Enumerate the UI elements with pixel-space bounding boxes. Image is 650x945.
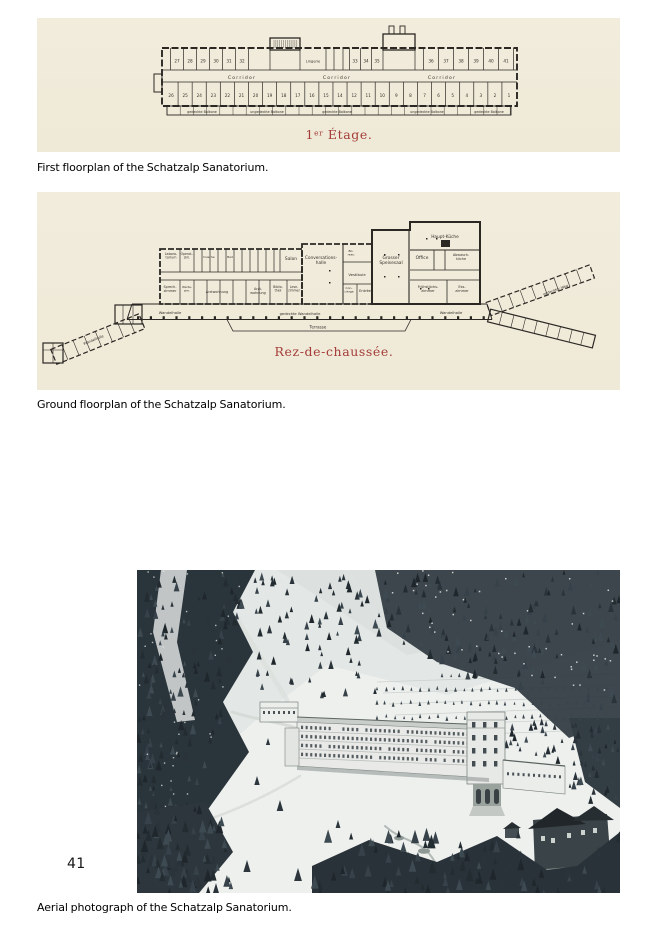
svg-text:10: 10 xyxy=(380,93,386,98)
svg-text:41: 41 xyxy=(503,59,509,64)
svg-text:Lingerie: Lingerie xyxy=(306,60,321,64)
svg-text:gedeckte Balkone: gedeckte Balkone xyxy=(322,110,351,114)
svg-text:Ess-zimmer: Ess-zimmer xyxy=(455,285,469,293)
svg-text:37: 37 xyxy=(443,59,449,64)
figure-first-floorplan: CorridorCorridorCorridor2728293031323334… xyxy=(37,18,620,152)
svg-text:16: 16 xyxy=(309,93,315,98)
svg-text:Conversations-halle: Conversations-halle xyxy=(305,255,338,266)
svg-text:30: 30 xyxy=(213,59,219,64)
svg-text:Terrasse: Terrasse xyxy=(309,325,327,330)
svg-text:Entrée: Entrée xyxy=(359,289,372,293)
figure-aerial-photo xyxy=(137,570,620,893)
svg-text:36: 36 xyxy=(428,59,434,64)
page-number: 41 xyxy=(67,856,85,872)
first-floorplan-drawing: CorridorCorridorCorridor2728293031323334… xyxy=(37,18,620,152)
svg-text:28: 28 xyxy=(187,59,193,64)
caption-ground-floorplan: Ground floorplan of the Schatzalp Sanato… xyxy=(37,398,286,411)
svg-text:18: 18 xyxy=(281,93,287,98)
svg-text:Dusche: Dusche xyxy=(203,255,214,259)
svg-text:17: 17 xyxy=(295,93,301,98)
svg-text:Biblio-thek: Biblio-thek xyxy=(273,285,283,292)
svg-text:6: 6 xyxy=(437,93,440,98)
svg-text:32: 32 xyxy=(239,59,245,64)
svg-text:Arztwohnung: Arztwohnung xyxy=(206,290,228,294)
svg-text:25: 25 xyxy=(183,93,189,98)
svg-text:22: 22 xyxy=(225,93,231,98)
svg-text:7: 7 xyxy=(423,93,426,98)
svg-text:Lese-zimmer: Lese-zimmer xyxy=(288,285,300,292)
svg-text:5: 5 xyxy=(451,93,454,98)
svg-text:Operat.-zim.: Operat.-zim. xyxy=(181,252,194,259)
svg-text:15: 15 xyxy=(323,93,329,98)
svg-text:29: 29 xyxy=(200,59,206,64)
aerial-photo-image xyxy=(137,570,620,893)
svg-text:24: 24 xyxy=(197,93,203,98)
svg-text:34: 34 xyxy=(363,59,369,64)
figure-ground-floorplan: Labora-toriumOperat.-zim.DuscheBadSalonC… xyxy=(37,192,620,390)
svg-text:23: 23 xyxy=(211,93,217,98)
svg-text:12: 12 xyxy=(351,93,357,98)
svg-text:11: 11 xyxy=(366,93,372,98)
ground-floorplan-drawing: Labora-toriumOperat.-zim.DuscheBadSalonC… xyxy=(37,192,620,390)
svg-text:38: 38 xyxy=(458,59,464,64)
svg-text:Warte-zim.: Warte-zim. xyxy=(182,285,192,292)
svg-text:2: 2 xyxy=(494,93,497,98)
svg-text:21: 21 xyxy=(239,93,245,98)
svg-text:Arzt-wohnung: Arzt-wohnung xyxy=(250,287,266,295)
svg-text:3: 3 xyxy=(480,93,483,98)
svg-text:Wandelhalle: Wandelhalle xyxy=(440,311,463,315)
svg-text:Vestibule: Vestibule xyxy=(348,272,366,277)
book-page: CorridorCorridorCorridor2728293031323334… xyxy=(0,0,650,945)
svg-text:Wandelhalle: Wandelhalle xyxy=(159,311,182,315)
svg-text:Wandelhalle: Wandelhalle xyxy=(83,334,104,346)
svg-text:gedeckte Balkone: gedeckte Balkone xyxy=(474,110,503,114)
svg-text:9: 9 xyxy=(395,93,398,98)
svg-text:Office: Office xyxy=(416,255,429,261)
caption-aerial-photo: Aerial photograph of the Schatzalp Sanat… xyxy=(37,901,292,914)
svg-text:14: 14 xyxy=(337,93,343,98)
svg-text:Corridor: Corridor xyxy=(228,75,256,81)
svg-text:19: 19 xyxy=(267,93,273,98)
svg-text:Corridor: Corridor xyxy=(428,75,456,81)
svg-text:33: 33 xyxy=(352,59,358,64)
svg-text:Labora-torium: Labora-torium xyxy=(165,252,178,260)
svg-text:GrosserSpeisesaal: GrosserSpeisesaal xyxy=(379,255,402,266)
svg-text:31: 31 xyxy=(226,59,232,64)
svg-text:1: 1 xyxy=(508,93,511,98)
svg-text:Salon: Salon xyxy=(285,256,297,262)
caption-first-floorplan: First floorplan of the Schatzalp Sanator… xyxy=(37,161,268,174)
svg-text:gedeckte Wandelhalle: gedeckte Wandelhalle xyxy=(280,312,322,316)
svg-text:35: 35 xyxy=(374,59,380,64)
svg-text:gedeckte Balkone: gedeckte Balkone xyxy=(187,110,216,114)
svg-text:1er Étage.: 1er Étage. xyxy=(306,127,373,142)
svg-text:27: 27 xyxy=(174,59,180,64)
svg-text:39: 39 xyxy=(473,59,479,64)
svg-text:Con-cierge: Con-cierge xyxy=(344,286,353,293)
svg-text:20: 20 xyxy=(253,93,259,98)
svg-text:Corridor: Corridor xyxy=(323,75,351,81)
svg-text:Rez-de-chaussée.: Rez-de-chaussée. xyxy=(275,344,394,359)
svg-text:Frühstücks-zimmer: Frühstücks-zimmer xyxy=(418,285,439,293)
svg-text:gedeckter Weg: gedeckter Weg xyxy=(543,284,569,297)
svg-text:Sprech-zimmer: Sprech-zimmer xyxy=(164,285,178,293)
svg-text:ungedeckte Balkone: ungedeckte Balkone xyxy=(410,110,444,114)
svg-text:Bü-reau: Bü-reau xyxy=(348,249,355,256)
svg-text:Haupt-Küche: Haupt-Küche xyxy=(431,234,459,240)
svg-text:Abwasch-küche: Abwasch-küche xyxy=(453,253,470,261)
svg-text:8: 8 xyxy=(409,93,412,98)
svg-text:4: 4 xyxy=(465,93,468,98)
svg-text:Bad: Bad xyxy=(227,255,233,259)
svg-text:40: 40 xyxy=(488,59,494,64)
svg-text:26: 26 xyxy=(168,93,174,98)
svg-text:ungedeckte Balkone: ungedeckte Balkone xyxy=(250,110,284,114)
